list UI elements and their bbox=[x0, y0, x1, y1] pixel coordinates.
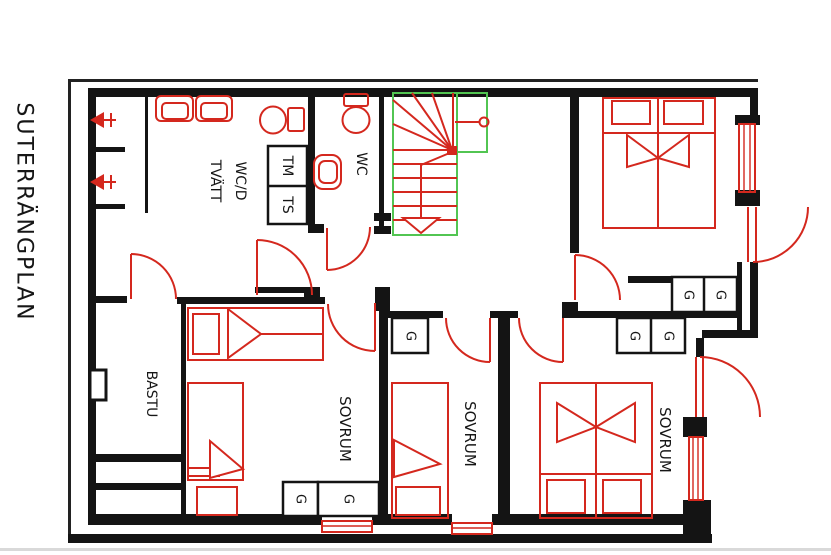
closet-label: G bbox=[661, 331, 676, 341]
floor-plan-canvas: SUTERRÄNGPLAN WC/D TVÄTT TM TS WC BASTU … bbox=[0, 0, 831, 555]
fixtures bbox=[90, 94, 370, 190]
toilet bbox=[260, 107, 304, 134]
pillow bbox=[603, 480, 641, 513]
single-bed bbox=[392, 383, 448, 518]
closet-label: G bbox=[403, 331, 418, 341]
closet-label: G bbox=[681, 290, 696, 300]
window bbox=[452, 523, 492, 534]
sauna-bench-upper bbox=[88, 454, 183, 462]
stair-steps bbox=[393, 93, 457, 220]
label-dryer: TS bbox=[279, 195, 295, 214]
sheet-edge-line bbox=[0, 548, 831, 551]
door-bedroom-3 bbox=[519, 318, 563, 362]
washing-machine bbox=[156, 96, 193, 121]
stair-direction-arrow bbox=[403, 218, 439, 233]
room-label-bedroom-1: SOVRUM bbox=[336, 396, 354, 462]
room-label-laundry-line1: WC/D bbox=[232, 161, 248, 200]
door-laundry bbox=[257, 240, 312, 295]
closet-label: G bbox=[293, 494, 308, 504]
door-bedroom-2 bbox=[446, 318, 490, 362]
pillow bbox=[396, 487, 440, 515]
room-label-laundry-line2: TVÄTT bbox=[207, 159, 225, 203]
sauna-heater bbox=[90, 370, 106, 400]
window bbox=[689, 437, 703, 500]
pillow bbox=[197, 487, 237, 515]
room-label-wc: WC bbox=[353, 152, 369, 176]
sauna-bench-lower bbox=[88, 483, 183, 490]
plan-title: SUTERRÄNGPLAN bbox=[12, 102, 38, 321]
washing-machine bbox=[196, 96, 232, 121]
double-bed bbox=[540, 383, 652, 518]
labels: SUTERRÄNGPLAN WC/D TVÄTT TM TS WC BASTU … bbox=[12, 102, 728, 504]
window bbox=[322, 521, 372, 532]
window bbox=[739, 124, 755, 192]
door-bedroom-top-right bbox=[575, 255, 620, 300]
room-label-bedroom-2: SOVRUM bbox=[461, 401, 479, 467]
toilet bbox=[343, 94, 370, 133]
double-bed bbox=[603, 98, 715, 228]
staircase bbox=[393, 93, 489, 235]
closet-label: G bbox=[341, 494, 356, 504]
floor-plan-page: SUTERRÄNGPLAN WC/D TVÄTT TM TS WC BASTU … bbox=[0, 0, 831, 555]
door-sauna bbox=[131, 254, 176, 299]
room-label-bedroom-3: SOVRUM bbox=[656, 407, 674, 473]
door-bedroom-1 bbox=[328, 303, 375, 351]
closet-label: G bbox=[627, 331, 642, 341]
sink bbox=[314, 155, 341, 189]
room-label-sauna: BASTU bbox=[143, 371, 159, 418]
single-bed bbox=[188, 308, 323, 360]
pillow bbox=[547, 480, 585, 513]
door-exterior-lower bbox=[696, 357, 760, 417]
door-exterior-upper bbox=[748, 207, 808, 262]
door-wc bbox=[327, 227, 370, 270]
closet-label: G bbox=[713, 290, 728, 300]
label-washing-machine: TM bbox=[279, 155, 295, 177]
single-bed bbox=[188, 383, 243, 515]
